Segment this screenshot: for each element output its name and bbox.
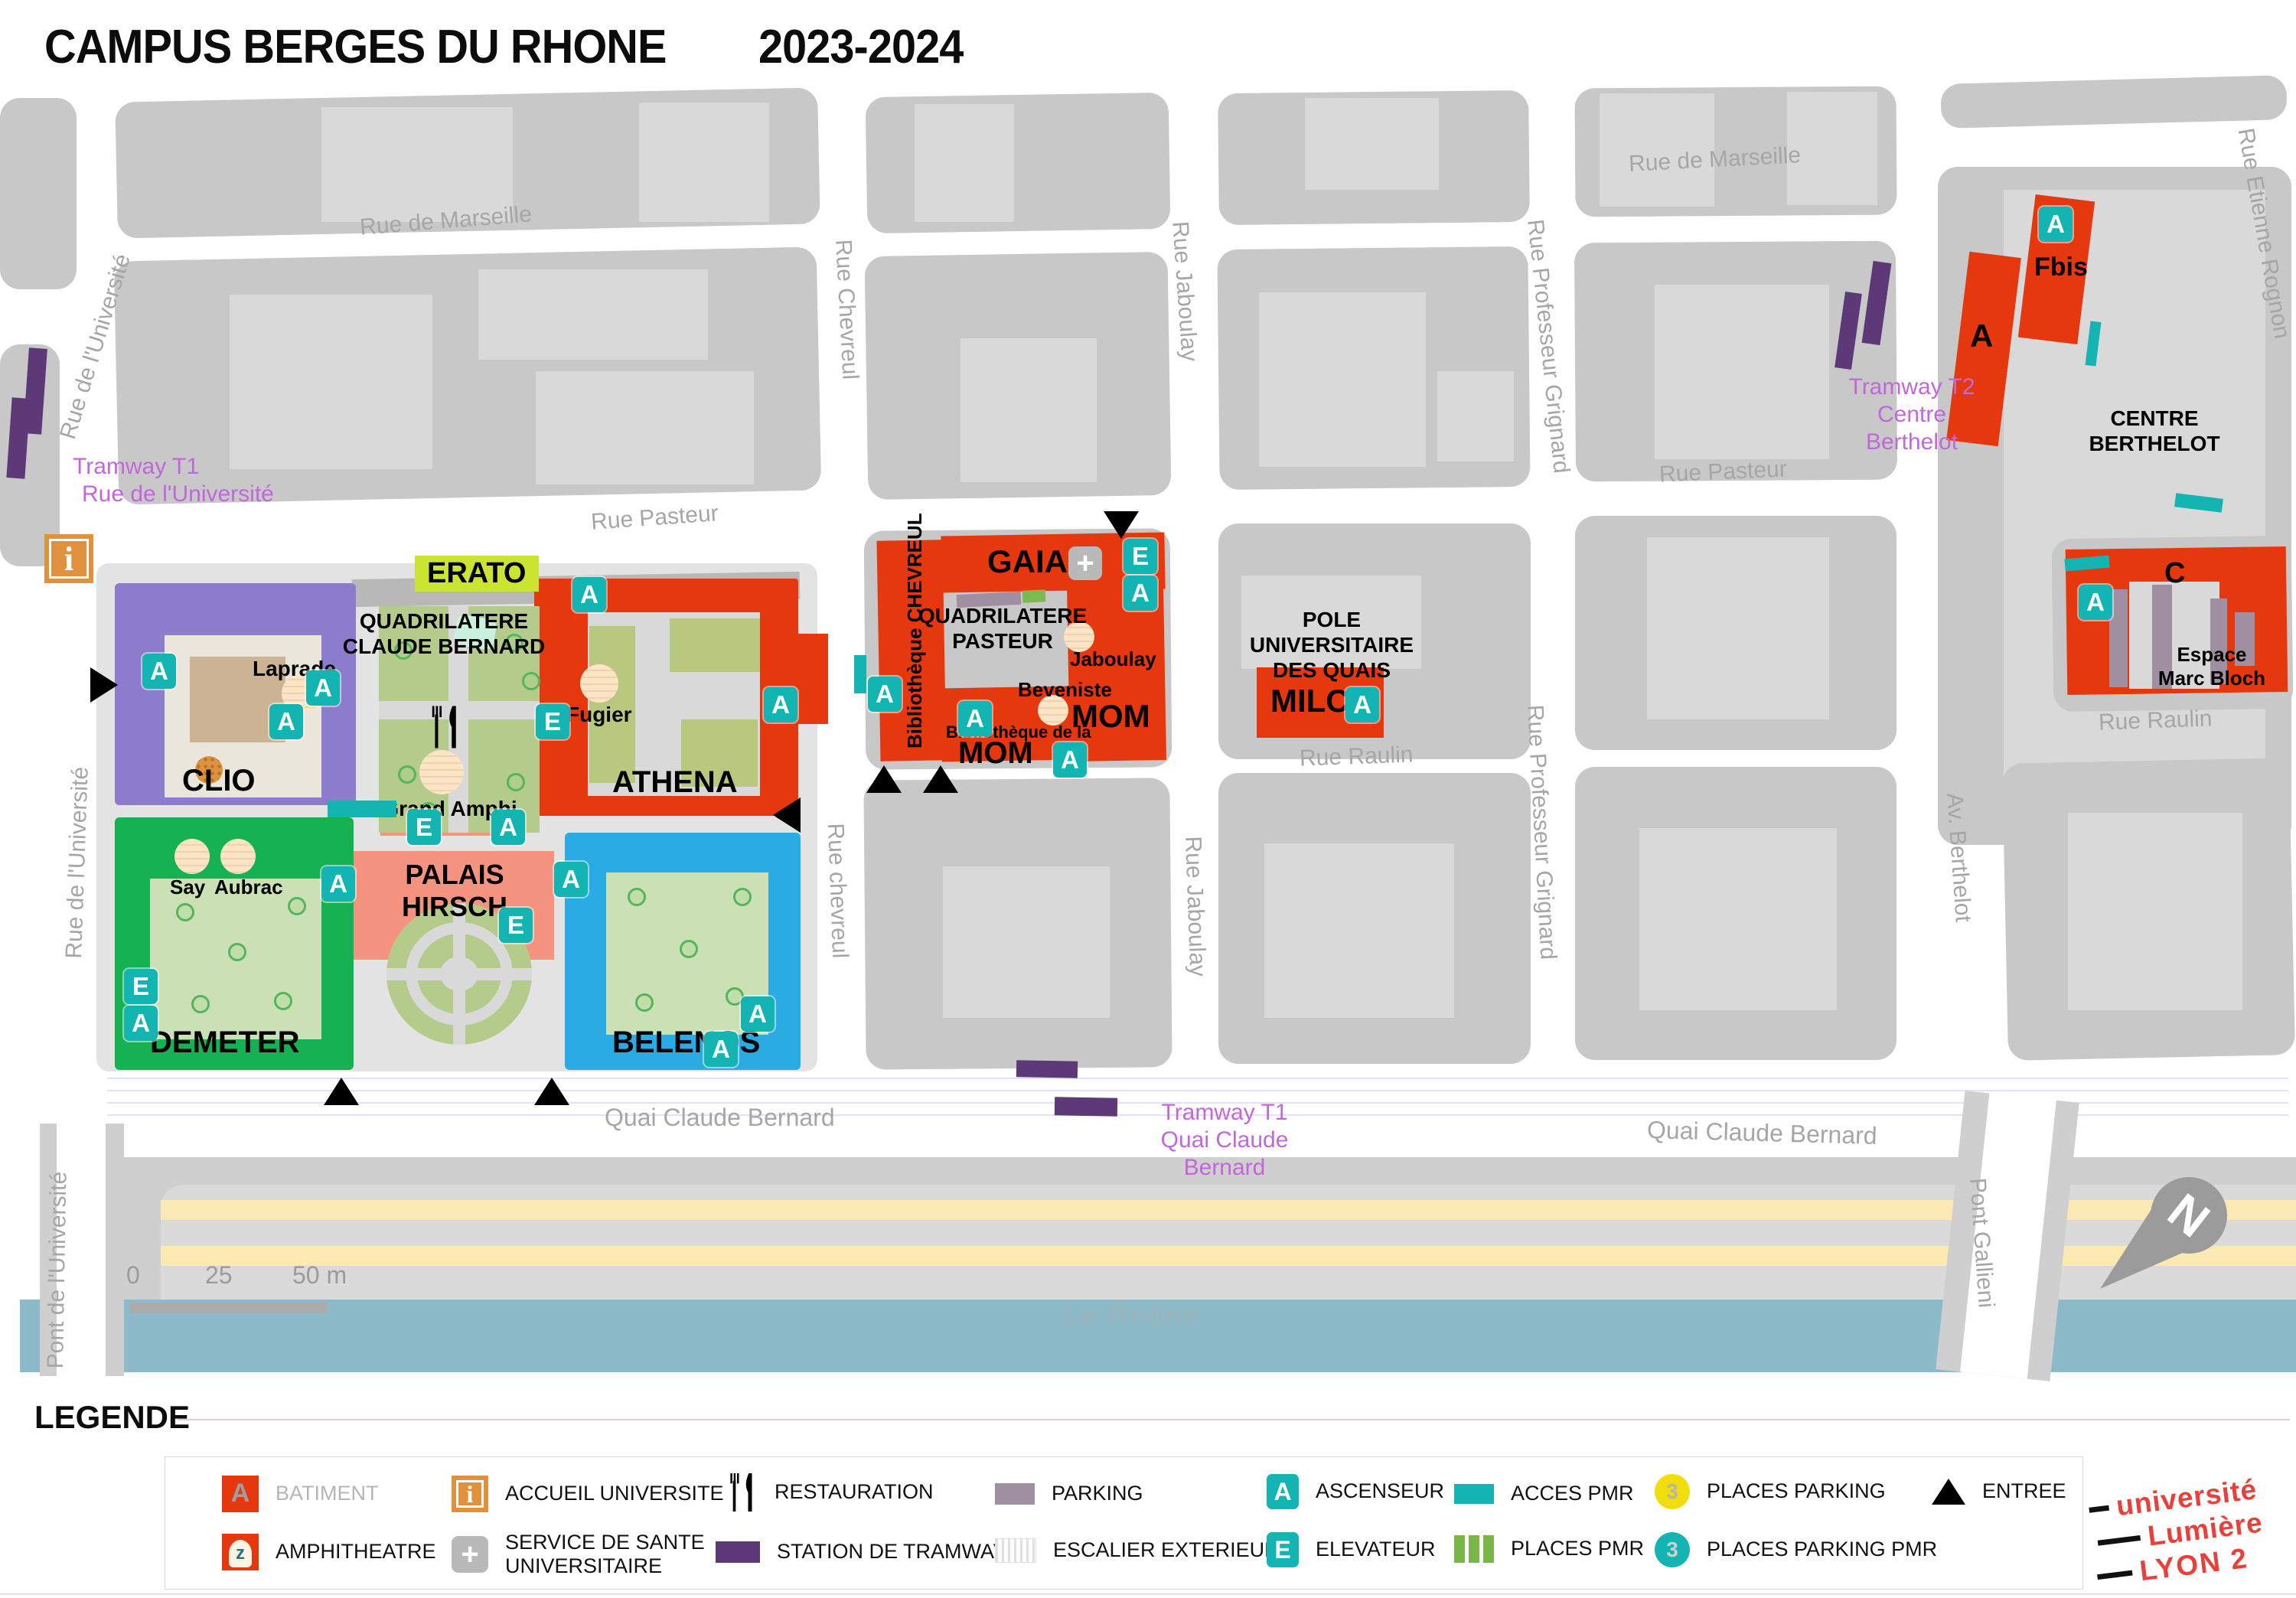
- pole-line2: DES QUAIS: [1225, 657, 1439, 683]
- street-jaboulay-mid: Rue Jaboulay: [1179, 836, 1210, 977]
- logo-dash: [2097, 1570, 2133, 1580]
- tree-icon: [228, 943, 246, 961]
- scale-50m: 50 m: [292, 1261, 347, 1290]
- tree-icon: [680, 940, 698, 958]
- athena-garden: [670, 618, 760, 672]
- tram-t2-line1: Tramway T2: [1843, 373, 1981, 401]
- building-c-label: C: [2164, 557, 2185, 590]
- street-quai-left: Quai Claude Bernard: [605, 1104, 835, 1132]
- ascenseur-badge-milc: A: [1345, 687, 1379, 722]
- restauration-icon: [727, 1471, 758, 1514]
- amphitheatre-icon: z: [222, 1534, 259, 1570]
- acces-pmr-strip: [854, 655, 866, 693]
- entree-icon: [866, 765, 902, 793]
- city-building: [2068, 813, 2242, 1010]
- acces-pmr-strip: [328, 801, 396, 817]
- ascenseur-badge-clio: A: [306, 670, 340, 706]
- batiment-icon: A: [222, 1476, 259, 1512]
- legend-label-sante: SERVICE DE SANTEUNIVERSITAIRE: [505, 1531, 705, 1578]
- tram-t1-quai-line1: Tramway T1: [1140, 1099, 1309, 1127]
- university-logo: université Lumière Lyon 2: [2087, 1469, 2296, 1598]
- street-quai-right: Quai Claude Bernard: [1647, 1116, 1877, 1150]
- clio-label: CLIO: [182, 764, 256, 798]
- tree-icon: [507, 773, 525, 791]
- ascenseur-badge-belenos: A: [704, 1032, 738, 1067]
- centre-berthelot-line2: BERTHELOT: [2078, 431, 2231, 456]
- city-block: [1940, 75, 2287, 129]
- city-building: [1787, 92, 1877, 205]
- logo-dash: [2089, 1505, 2109, 1512]
- tram-t1-quai-label: Tramway T1 Quai Claude Bernard: [1140, 1099, 1309, 1182]
- marc-bloch-line1: Espace: [2143, 643, 2281, 667]
- legend-item-places-parking: 3 PLACES PARKING: [1655, 1474, 1886, 1509]
- city-building: [536, 371, 754, 484]
- accueil-universite-icon: i: [44, 534, 93, 583]
- street-jaboulay-top: Rue Jaboulay: [1166, 220, 1202, 362]
- page-title: CAMPUS BERGES DU RHONE 2023-2024: [44, 20, 979, 74]
- tram-track: [107, 1078, 2288, 1079]
- building-erato: ERATO: [415, 556, 539, 592]
- garden-center: [440, 957, 478, 991]
- elevateur-badge-palais: E: [407, 810, 441, 845]
- legend-label-restauration: RESTAURATION: [775, 1480, 934, 1504]
- ascenseur-badge-quad-pasteur: A: [958, 701, 992, 736]
- tree-icon: [635, 993, 654, 1012]
- legend-item-restauration: RESTAURATION: [727, 1471, 934, 1514]
- amphi-fugier-label: Fugier: [566, 703, 632, 727]
- city-building: [1647, 537, 1829, 719]
- info-icon: i: [64, 540, 73, 579]
- accueil-icon: i: [452, 1476, 488, 1512]
- tram-t1-quai-platform: [1055, 1097, 1117, 1116]
- quad-pasteur-line1: QUADRILATERE: [903, 603, 1102, 628]
- ascenseur-badge-athena: A: [764, 687, 797, 722]
- tree-icon: [191, 995, 210, 1013]
- legend-item-accueil: i ACCUEIL UNIVERSITE: [452, 1476, 724, 1512]
- entree-icon: [324, 1078, 359, 1105]
- pole-line1: POLE UNIVERSITAIRE: [1225, 607, 1439, 657]
- north-arrow: N: [2091, 1169, 2244, 1300]
- tree-icon: [398, 765, 416, 784]
- legend-item-entree: ENTREE: [1932, 1479, 2066, 1505]
- escalier-icon: [995, 1538, 1036, 1563]
- legend-label-amphitheatre: AMPHITHEATRE: [276, 1540, 436, 1564]
- street-chevreul-top: Rue Chevreul: [830, 239, 863, 380]
- ascenseur-badge-demeter: A: [321, 866, 355, 902]
- ascenseur-badge-gaia: A: [1124, 576, 1157, 611]
- city-building: [639, 103, 769, 222]
- quad-cb-line2: CLAUDE BERNARD: [329, 634, 559, 659]
- tree-icon: [522, 672, 540, 690]
- tram-t1-univ-line1: Tramway T1: [73, 453, 274, 481]
- legend-label-entree: ENTREE: [1982, 1479, 2066, 1503]
- places-parking-icon: 3: [1655, 1474, 1690, 1509]
- ascenseur-badge-athena: A: [572, 577, 606, 612]
- entree-icon: [1104, 511, 1139, 539]
- city-building: [960, 338, 1097, 482]
- city-building: [478, 269, 708, 360]
- city-building: [230, 295, 432, 469]
- ascenseur-badge-c: A: [2079, 585, 2112, 620]
- street-pont-universite: Pont de l'Université: [43, 1172, 72, 1369]
- bib-mom-line2: MOM: [958, 736, 1033, 771]
- legend-label-escalier: ESCALIER EXTERIEUR: [1053, 1538, 1280, 1562]
- legend-label-places-pmr: PLACES PMR: [1511, 1537, 1644, 1560]
- demeter-label: DEMETER: [150, 1026, 300, 1060]
- street-raulin-right: Rue Raulin: [2098, 706, 2213, 735]
- legend-item-acces-pmr: ACCES PMR: [1454, 1482, 1634, 1505]
- street-chevreul-mid: Rue chevreul: [822, 823, 853, 959]
- tram-track: [107, 1090, 2288, 1091]
- city-block: [866, 93, 1171, 233]
- tree-icon: [733, 888, 752, 906]
- ascenseur-badge-bib-chevreul: A: [868, 677, 902, 712]
- campus-map-poster: CAMPUS BERGES DU RHONE 2023-2024: [0, 0, 2296, 1598]
- ascenseur-badge-clio: A: [269, 704, 303, 739]
- legend-label-places-parking: PLACES PARKING: [1707, 1479, 1886, 1503]
- ascenseur-badge-fbis: A: [2039, 207, 2073, 242]
- amphi-say-circle: [174, 839, 210, 874]
- river-label: Le Rhône: [1064, 1301, 1201, 1331]
- legend-item-ascenseur: A ASCENSEUR: [1267, 1474, 1444, 1509]
- sante-icon: +: [1068, 546, 1102, 580]
- gaia-label: GAIA: [987, 543, 1068, 580]
- street-raulin-mid: Rue Raulin: [1299, 742, 1414, 771]
- ascenseur-icon: A: [1267, 1474, 1299, 1509]
- milc-label: MILC: [1270, 683, 1349, 719]
- city-building: [943, 866, 1110, 1018]
- places-pmr-strip: [1022, 589, 1046, 603]
- acces-pmr-icon: [1454, 1484, 1494, 1504]
- legend-label-elevateur: ELEVATEUR: [1316, 1538, 1436, 1561]
- tram-t2-line2: Centre: [1843, 401, 1981, 429]
- elevateur-badge-gaia: E: [1124, 539, 1157, 574]
- fbis-label: Fbis: [2034, 253, 2088, 282]
- elevateur-badge-palais: E: [499, 908, 533, 943]
- legend-label-accueil: ACCUEIL UNIVERSITE: [505, 1482, 724, 1505]
- legend-divider: [178, 1419, 2290, 1420]
- sante-icon: +: [452, 1536, 488, 1573]
- restauration-icon: [429, 706, 462, 748]
- scale-25: 25: [205, 1261, 233, 1290]
- centre-berthelot-line1: CENTRE: [2078, 406, 2231, 431]
- ascenseur-badge-palais: A: [491, 810, 525, 845]
- places-pmr-icon: [1454, 1535, 1494, 1563]
- amphi-fugier-circle: [580, 664, 618, 703]
- city-building: [1264, 843, 1454, 1018]
- elevateur-icon: E: [1267, 1532, 1299, 1567]
- legend-item-parking: PARKING: [995, 1482, 1143, 1505]
- ascenseur-badge-demeter: A: [124, 1006, 158, 1041]
- street-universite-bottom: Rue de l'Université: [61, 766, 94, 959]
- places-parking-pmr-icon: 3: [1655, 1532, 1690, 1567]
- city-building: [915, 104, 1014, 222]
- ascenseur-badge-belenos: A: [741, 996, 775, 1032]
- station-tramway-icon: [716, 1541, 760, 1563]
- entree-icon: [923, 765, 958, 793]
- amphi-say-label: Say: [170, 876, 205, 899]
- legend-title: LEGENDE: [34, 1399, 190, 1436]
- city-building: [1305, 98, 1439, 190]
- legend-label-parking: PARKING: [1052, 1482, 1143, 1505]
- parking-icon: [995, 1483, 1035, 1505]
- quad-claude-bernard-label: QUADRILATERE CLAUDE BERNARD: [329, 608, 559, 659]
- ascenseur-badge-mom: A: [1053, 742, 1087, 778]
- legend-item-elevateur: E ELEVATEUR: [1267, 1532, 1436, 1567]
- scale-bar: [130, 1303, 328, 1313]
- legend-label-tramway: STATION DE TRAMWAY: [777, 1540, 1006, 1564]
- entree-icon: [773, 797, 801, 833]
- sante-line1: SERVICE DE SANTE: [505, 1531, 705, 1554]
- city-building: [1259, 292, 1426, 467]
- centre-berthelot-label: CENTRE BERTHELOT: [2078, 406, 2231, 456]
- legend-label-batiment: BATIMENT: [276, 1482, 379, 1505]
- elevateur-badge-athena: E: [536, 704, 569, 739]
- tree-icon: [176, 903, 194, 921]
- tree-icon: [628, 888, 646, 906]
- tree-icon: [274, 992, 292, 1010]
- belenos-label: BELENOS: [612, 1026, 760, 1060]
- logo-dash: [2098, 1534, 2141, 1545]
- city-building: [1639, 828, 1837, 1010]
- title-text: CAMPUS BERGES DU RHONE: [44, 20, 666, 74]
- amphi-grand-circle: [419, 750, 464, 794]
- city-building: [1655, 285, 1829, 459]
- tram-t1-quai-line3: Bernard: [1140, 1154, 1309, 1182]
- tram-t1-univ-line2: Rue de l'Université: [82, 481, 274, 508]
- marc-bloch-label: Espace Marc Bloch: [2143, 643, 2281, 690]
- tram-t1-quai-line2: Quai Claude: [1140, 1127, 1309, 1154]
- tree-icon: [288, 897, 306, 915]
- tram-t1-univ-label: Tramway T1 Rue de l'Université: [73, 453, 274, 508]
- pole-quais-label: POLE UNIVERSITAIRE DES QUAIS: [1225, 607, 1439, 683]
- athena-label: ATHENA: [612, 765, 738, 800]
- city-building: [1437, 371, 1514, 461]
- legend-label-acces-pmr: ACCES PMR: [1511, 1482, 1634, 1505]
- tram-t2-label: Tramway T2 Centre Berthelot: [1843, 373, 1981, 456]
- legend-label-places-parking-pmr: PLACES PARKING PMR: [1707, 1538, 1937, 1561]
- legend-item-tramway: STATION DE TRAMWAY: [716, 1540, 1006, 1564]
- map: Le Rhône Pont de l'Université Pont Galli…: [0, 0, 2296, 1378]
- building-a-label: A: [1970, 318, 1993, 354]
- accueil-icon-glyph: i: [467, 1480, 474, 1508]
- quad-pasteur-label: QUADRILATERE PASTEUR: [903, 603, 1102, 654]
- tram-t1-quai-platform: [1016, 1060, 1078, 1078]
- amphi-aubrac-label: Aubrac: [214, 876, 283, 899]
- amphi-jaboulay-label: Jaboulay: [1070, 647, 1156, 671]
- elevateur-badge-demeter: E: [124, 969, 158, 1004]
- erato-label: ERATO: [427, 557, 527, 589]
- entree-icon: [534, 1078, 569, 1105]
- marc-bloch-line2: Marc Bloch: [2143, 667, 2281, 690]
- legend-item-places-pmr: PLACES PMR: [1454, 1535, 1644, 1563]
- entree-icon: [90, 667, 118, 703]
- title-year: 2023-2024: [758, 20, 963, 74]
- quad-cb-line1: QUADRILATERE: [329, 608, 559, 634]
- building-athena-annex: [796, 634, 828, 724]
- amphitheatre-icon-glyph: z: [229, 1540, 252, 1567]
- legend-item-sante: + SERVICE DE SANTEUNIVERSITAIRE: [452, 1531, 705, 1578]
- legend-item-places-parking-pmr: 3 PLACES PARKING PMR: [1655, 1532, 1937, 1567]
- page-bottom-divider: [0, 1593, 2296, 1595]
- legend-label-ascenseur: ASCENSEUR: [1316, 1479, 1444, 1503]
- ascenseur-badge-belenos: A: [554, 862, 588, 897]
- legend-item-batiment: A BATIMENT: [222, 1476, 379, 1512]
- tram-t2-line3: Berthelot: [1843, 429, 1981, 456]
- amphi-aubrac-circle: [220, 839, 256, 874]
- city-block: [0, 98, 77, 289]
- legend-item-escalier: ESCALIER EXTERIEUR: [995, 1538, 1280, 1563]
- bib-chevreul-label: Bibliothèque CHEVREUL: [903, 513, 927, 748]
- sante-line2: UNIVERSITAIRE: [505, 1554, 662, 1577]
- scale-0: 0: [126, 1261, 140, 1290]
- street-pasteur-right: Rue Pasteur: [1658, 456, 1787, 488]
- legend-item-amphitheatre: z AMPHITHEATRE: [222, 1534, 436, 1570]
- ascenseur-badge-clio: A: [142, 654, 176, 689]
- entree-icon: [1932, 1479, 1965, 1505]
- street-pasteur-left: Rue Pasteur: [590, 501, 719, 536]
